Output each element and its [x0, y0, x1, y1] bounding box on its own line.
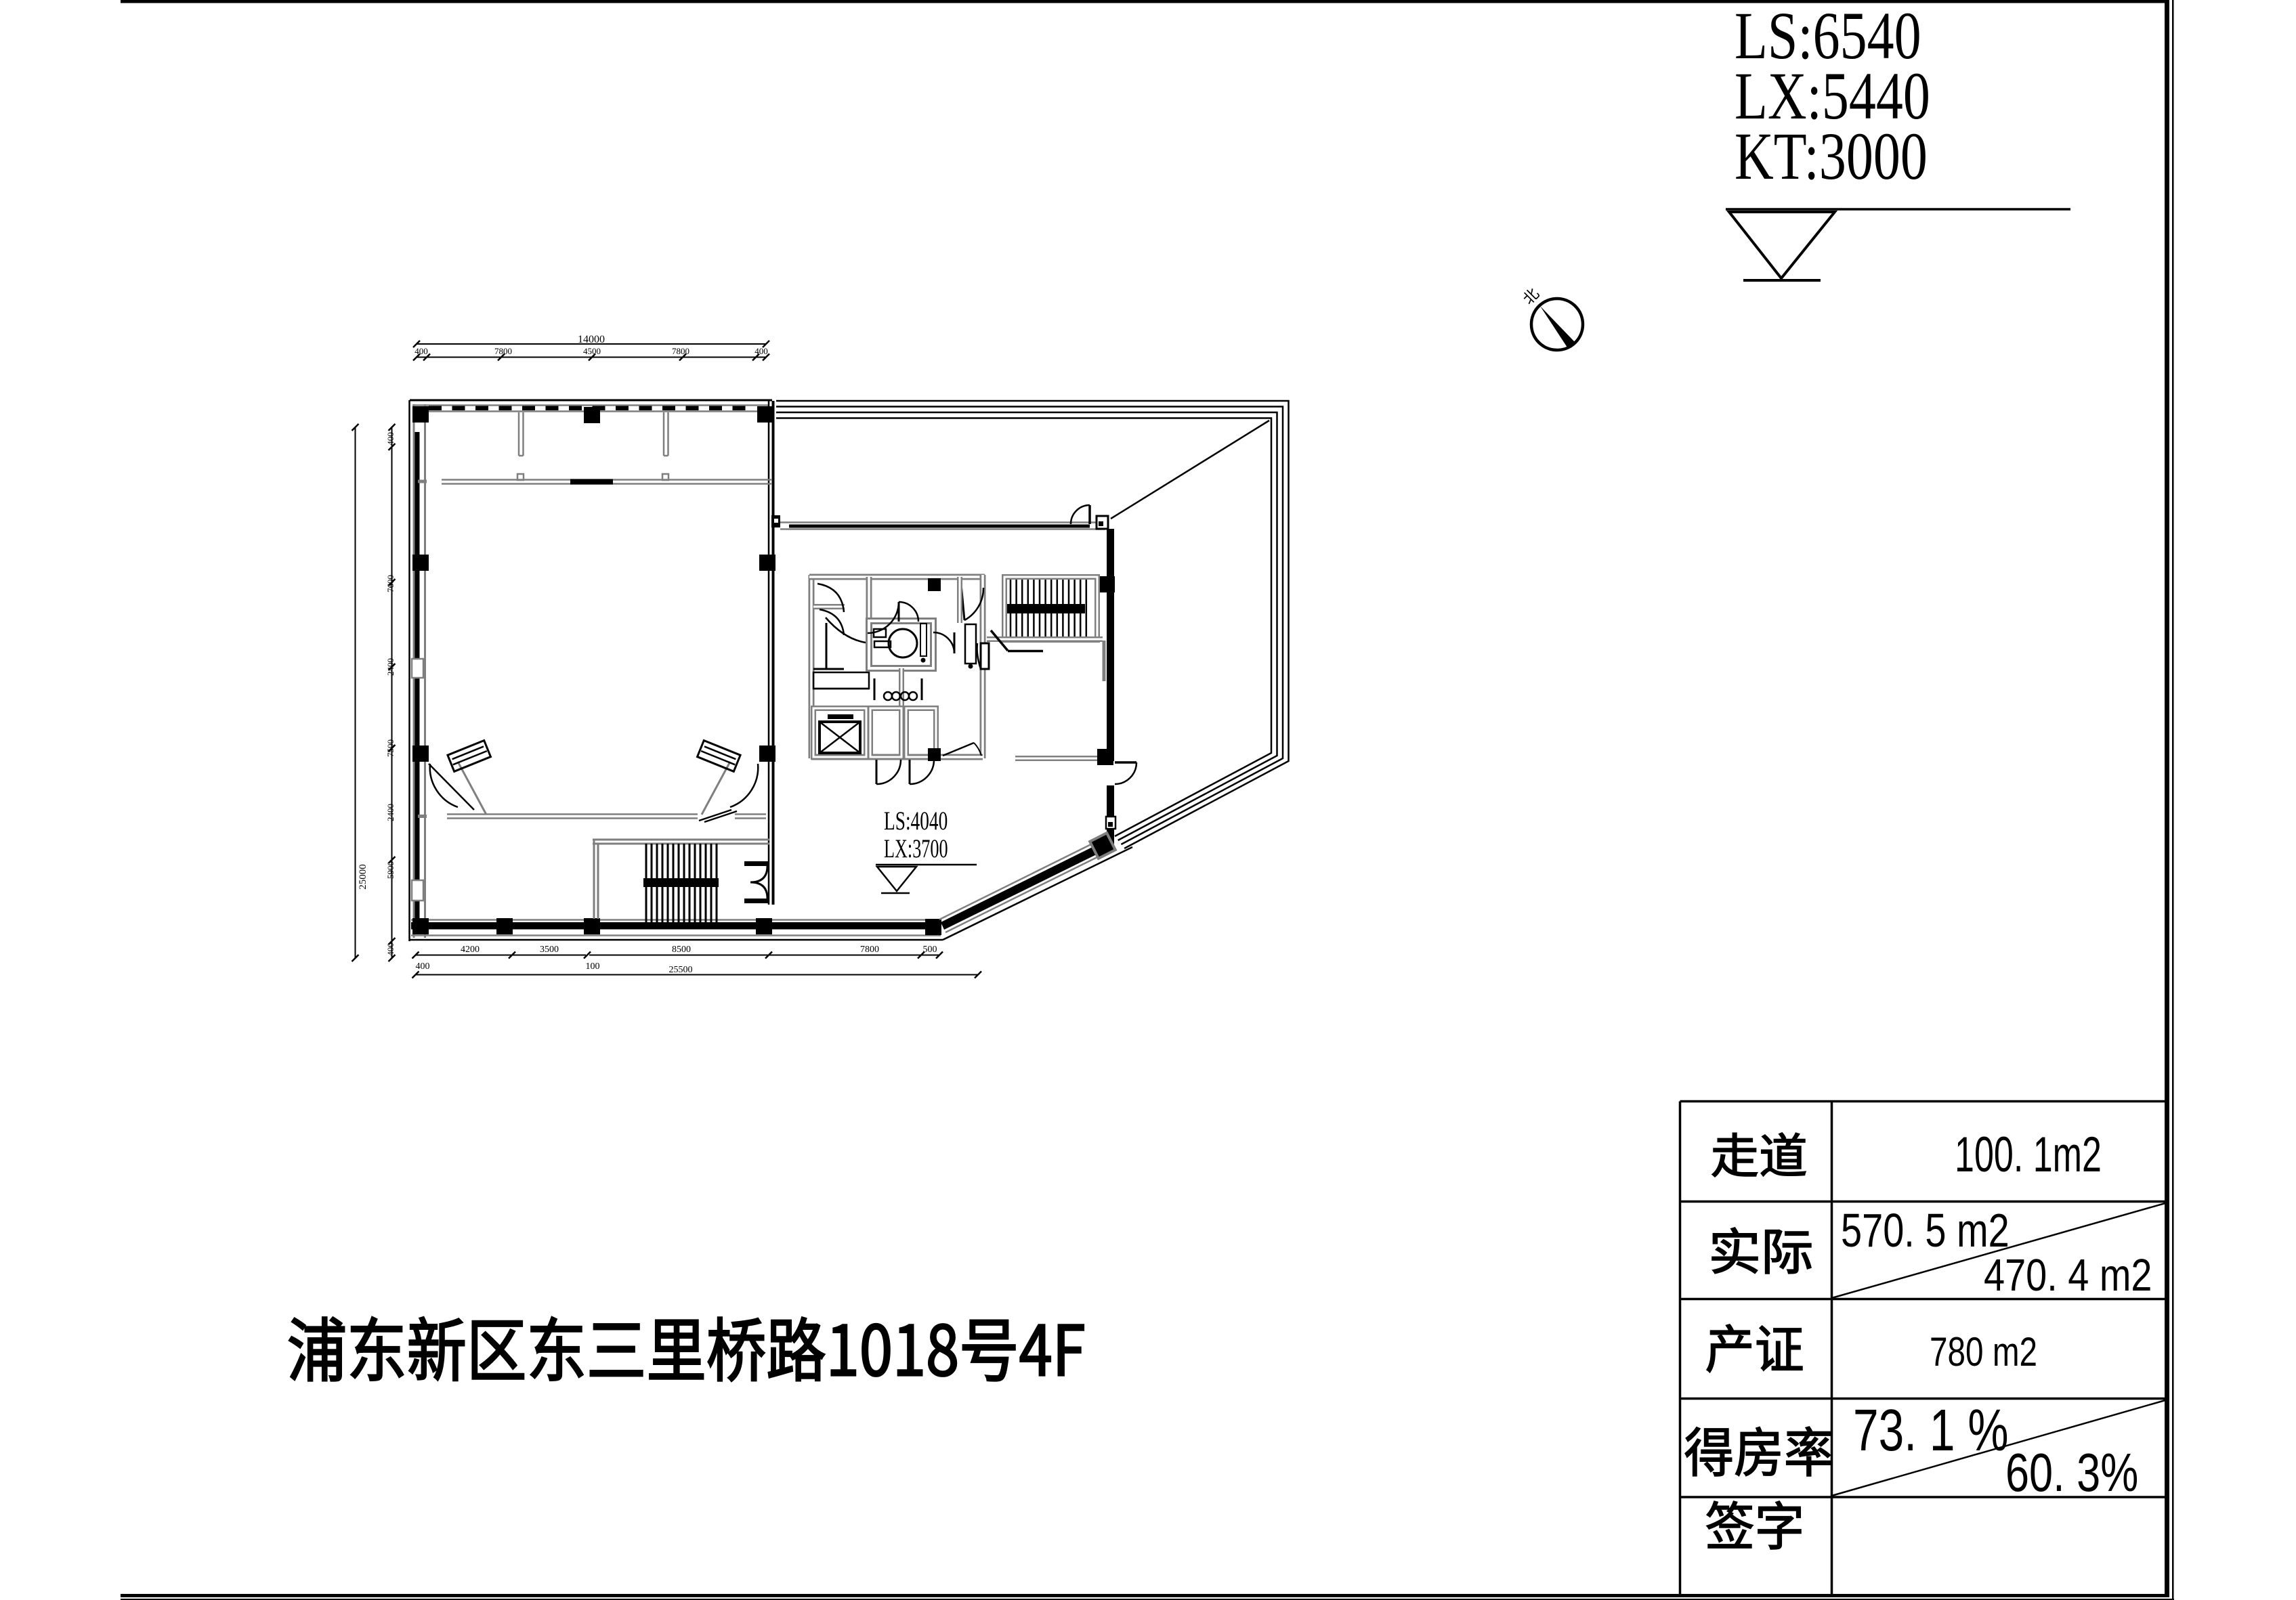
svg-text:570. 5 m2: 570. 5 m2	[1841, 1205, 2010, 1257]
svg-text:7600: 7600	[385, 575, 396, 592]
svg-text:2400: 2400	[385, 804, 396, 821]
svg-text:400: 400	[385, 943, 396, 956]
svg-text:7800: 7800	[672, 346, 689, 356]
svg-text:5900: 5900	[385, 861, 396, 879]
svg-text:400: 400	[385, 432, 396, 446]
svg-text:780 m2: 780 m2	[1930, 1330, 2037, 1375]
svg-text:7800: 7800	[860, 945, 879, 955]
svg-text:LS:4040: LS:4040	[884, 806, 948, 836]
svg-text:400: 400	[414, 346, 428, 356]
svg-text:73. 1 %: 73. 1 %	[1853, 1397, 2009, 1463]
svg-text:60. 3%: 60. 3%	[2005, 1443, 2138, 1503]
svg-text:7800: 7800	[494, 346, 512, 356]
svg-text:25000: 25000	[358, 864, 368, 890]
svg-text:470. 4 m2: 470. 4 m2	[1984, 1250, 2152, 1301]
svg-text:100. 1m2: 100. 1m2	[1955, 1128, 2102, 1183]
svg-text:100: 100	[586, 961, 600, 972]
svg-text:LX:3700: LX:3700	[884, 834, 948, 863]
svg-text:500: 500	[923, 945, 937, 955]
svg-text:8500: 8500	[672, 945, 691, 955]
svg-text:2400: 2400	[385, 658, 396, 676]
svg-text:25500: 25500	[669, 965, 693, 975]
svg-text:3500: 3500	[540, 945, 559, 955]
svg-text:400: 400	[754, 346, 768, 356]
svg-text:4500: 4500	[583, 346, 601, 356]
svg-text:4200: 4200	[461, 945, 480, 955]
svg-text:14000: 14000	[578, 334, 605, 345]
svg-text:400: 400	[416, 961, 430, 972]
svg-text:7500: 7500	[385, 739, 396, 757]
svg-text:KT:3000: KT:3000	[1735, 118, 1928, 194]
